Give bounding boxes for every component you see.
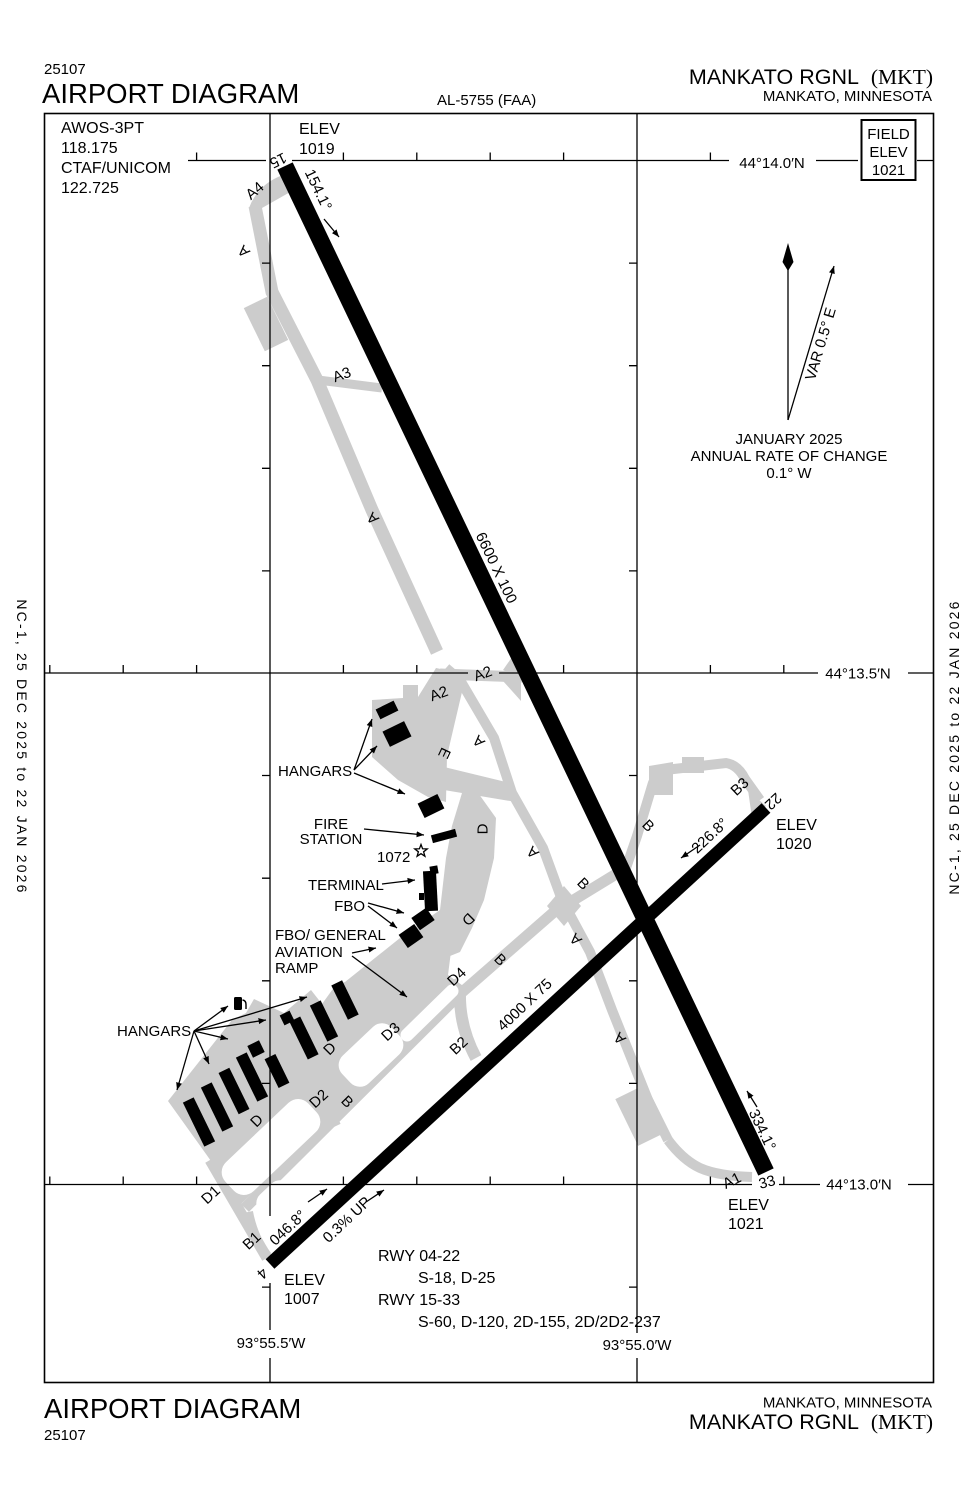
svg-text:1021: 1021 [728,1216,764,1233]
svg-text:ANNUAL RATE OF CHANGE: ANNUAL RATE OF CHANGE [691,448,888,465]
svg-text:FBO: FBO [334,898,365,915]
svg-text:1021: 1021 [872,162,905,179]
svg-text:ELEV: ELEV [299,121,340,138]
svg-text:44°13.5′N: 44°13.5′N [825,666,891,683]
svg-text:FBO/ GENERAL: FBO/ GENERAL [275,927,386,944]
svg-text:44°14.0′N: 44°14.0′N [739,155,805,172]
svg-text:CTAF/UNICOM: CTAF/UNICOM [61,160,171,177]
svg-text:AWOS-3PT: AWOS-3PT [61,120,144,137]
svg-text:MANKATO RGNL (MKT): MANKATO RGNL (MKT) [689,65,933,89]
svg-text:D: D [475,823,492,834]
svg-text:44°13.0′N: 44°13.0′N [826,1177,892,1194]
svg-text:122.725: 122.725 [61,180,119,197]
svg-text:RAMP: RAMP [275,960,318,977]
svg-text:RWY 04-22: RWY 04-22 [378,1248,460,1265]
svg-text:1007: 1007 [284,1291,320,1308]
svg-text:118.175: 118.175 [61,140,118,157]
svg-text:MANKATO RGNL (MKT): MANKATO RGNL (MKT) [689,1410,933,1434]
svg-text:HANGARS: HANGARS [117,1023,191,1040]
svg-text:93°55.5′W: 93°55.5′W [237,1335,307,1352]
svg-text:FIELD: FIELD [867,126,910,143]
svg-text:25107: 25107 [44,61,86,78]
svg-text:JANUARY 2025: JANUARY 2025 [735,431,842,448]
svg-text:93°55.0′W: 93°55.0′W [603,1337,673,1354]
svg-text:TERMINAL: TERMINAL [308,877,384,894]
svg-text:25107: 25107 [44,1427,86,1444]
svg-text:AVIATION: AVIATION [275,944,343,961]
svg-text:0.1° W: 0.1° W [766,465,812,482]
svg-text:AL-5755 (FAA): AL-5755 (FAA) [437,92,536,109]
svg-text:ELEV: ELEV [776,817,817,834]
svg-text:MANKATO, MINNESOTA: MANKATO, MINNESOTA [763,88,932,105]
svg-text:AIRPORT DIAGRAM: AIRPORT DIAGRAM [42,78,299,109]
svg-text:MANKATO, MINNESOTA: MANKATO, MINNESOTA [763,1395,932,1412]
svg-text:NC-1, 25 DEC 2025 to 22 JAN: NC-1, 25 DEC 2025 to 22 JAN 2026 [14,599,30,894]
svg-text:S-18, D-25: S-18, D-25 [418,1270,495,1287]
svg-text:ELEV: ELEV [284,1272,325,1289]
svg-text:ELEV: ELEV [869,144,907,161]
svg-text:AIRPORT DIAGRAM: AIRPORT DIAGRAM [44,1393,301,1424]
svg-text:1072: 1072 [377,849,410,866]
svg-text:HANGARS: HANGARS [278,763,352,780]
svg-text:1019: 1019 [299,141,335,158]
svg-text:RWY 15-33: RWY 15-33 [378,1292,460,1309]
svg-text:S-60, D-120, 2D-155, 2D/2D2-23: S-60, D-120, 2D-155, 2D/2D2-237 [418,1314,661,1331]
svg-text:NC-1, 25 DEC 2025 to 22 JAN: NC-1, 25 DEC 2025 to 22 JAN 2026 [946,599,962,894]
svg-text:1020: 1020 [776,836,812,853]
svg-text:STATION: STATION [300,831,363,848]
svg-text:ELEV: ELEV [728,1197,769,1214]
